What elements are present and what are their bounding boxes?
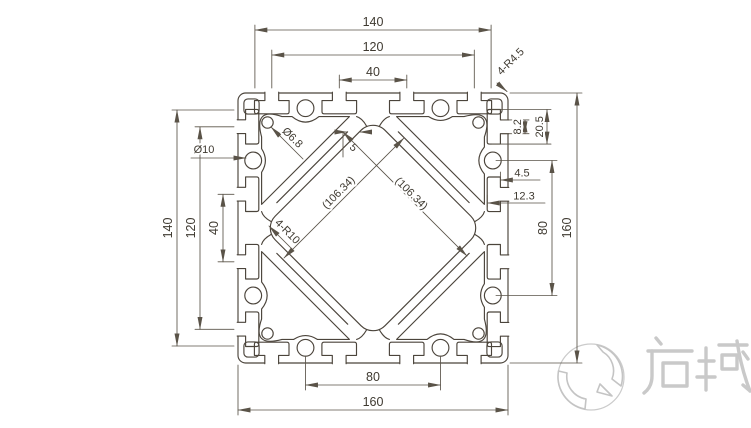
dim-slot-depth: 12.3 [513,191,534,203]
logo-q-swoosh-upper [597,345,622,386]
technical-drawing: 140 120 40 4-R4.5 8.2 20.5 4.5 12.3 80 [0,0,751,428]
logo-character-qi [644,338,692,393]
dim-top-120: 120 [363,40,384,54]
dim-right-160: 160 [560,218,574,239]
logo-character-yu [697,341,750,391]
dim-left-140: 140 [161,218,175,239]
dim-bottom-80: 80 [366,370,380,384]
logo-q-tail [597,384,612,396]
dim-bottom-160: 160 [363,395,384,409]
dim-slot-cavity: 20.5 [534,116,546,137]
drawing-canvas: 140 120 40 4-R4.5 8.2 20.5 4.5 12.3 80 [0,0,751,428]
dim-right-80: 80 [536,221,550,235]
logo-q-swoosh-lower [558,371,586,409]
dim-hole-dia: Ø10 [194,144,215,156]
dim-corner-fillet: 4-R4.5 [495,46,527,78]
dim-slot-lip-depth: 4.5 [514,168,529,180]
dim-slot-opening: 8.2 [512,119,524,134]
dim-top-140: 140 [363,15,384,29]
logo [558,338,750,410]
dim-left-120: 120 [184,218,198,239]
dim-top-40: 40 [366,65,380,79]
dim-left-40: 40 [207,221,221,235]
